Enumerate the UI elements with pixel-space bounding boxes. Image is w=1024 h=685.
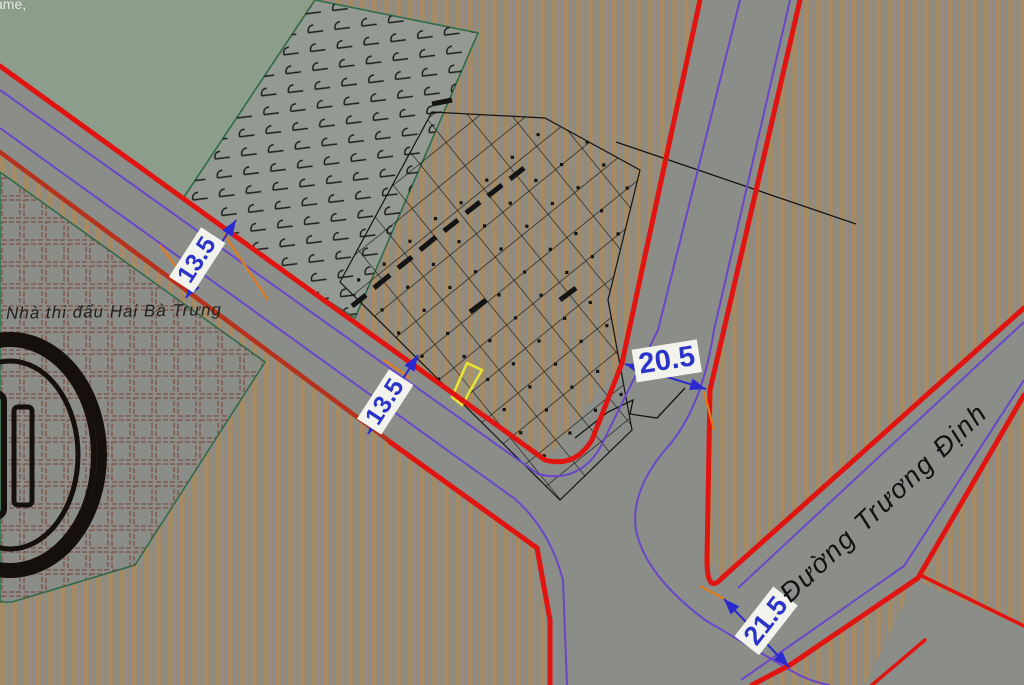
venue-area-label: Nhà thi đấu Hai Bà Trưng xyxy=(6,300,222,324)
corner-text-fragment: ame, xyxy=(0,0,26,12)
map-canvas xyxy=(0,0,1024,685)
planning-map-viewport[interactable]: ame, 13.5 13.5 20.5 21.5 Đường Trương Đị… xyxy=(0,0,1024,685)
